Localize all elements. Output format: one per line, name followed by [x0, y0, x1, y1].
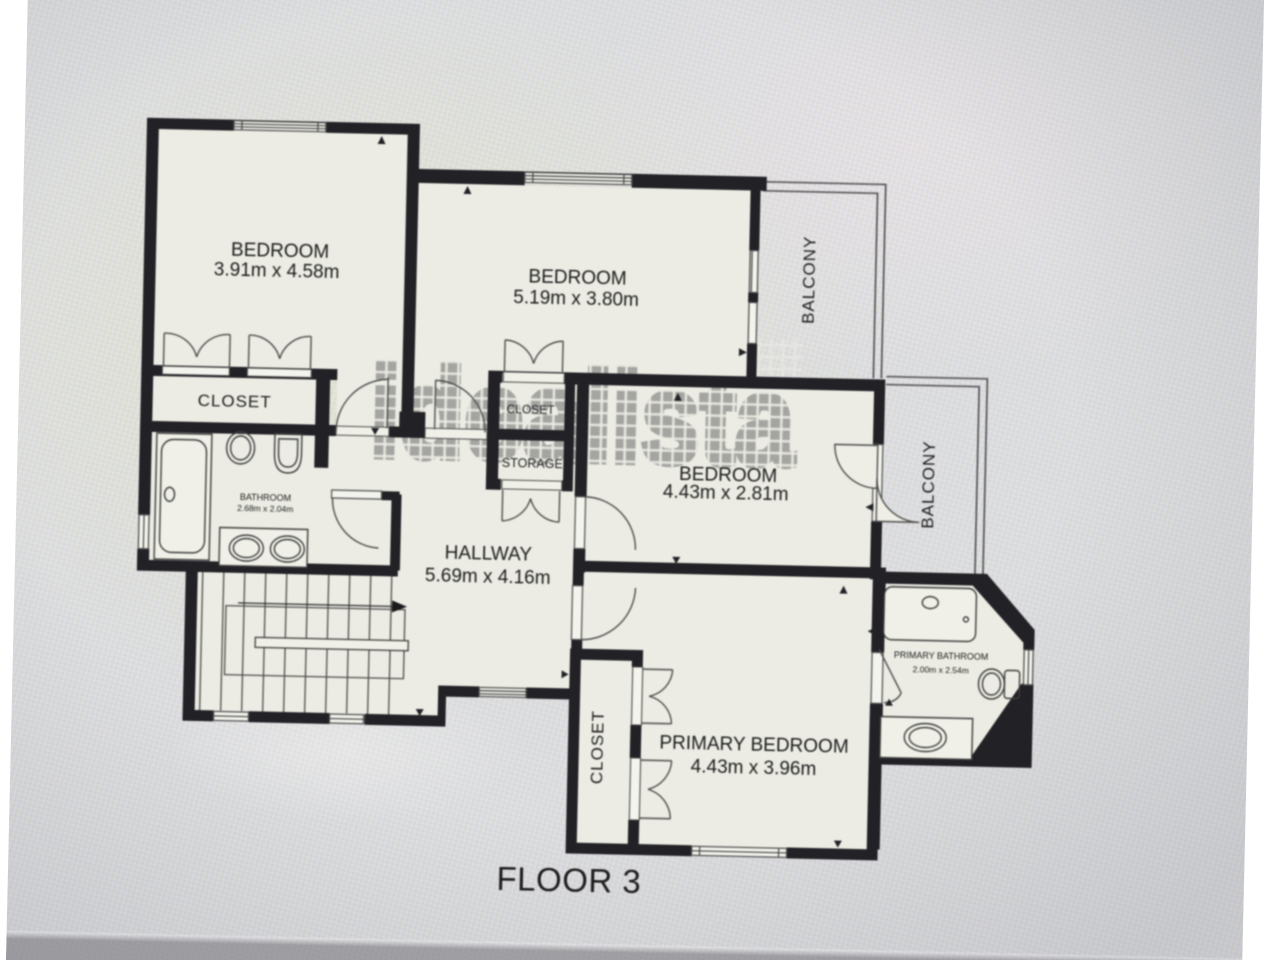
- svg-text:CLOSET: CLOSET: [197, 391, 271, 412]
- svg-text:CLOSET: CLOSET: [506, 402, 555, 417]
- svg-text:BEDROOM: BEDROOM: [528, 266, 627, 289]
- svg-text:2.00m x 2.54m: 2.00m x 2.54m: [913, 664, 969, 675]
- svg-text:5.19m x 3.80m: 5.19m x 3.80m: [513, 287, 639, 311]
- svg-text:CLOSET: CLOSET: [587, 710, 608, 784]
- svg-text:3.91m x 4.58m: 3.91m x 4.58m: [214, 259, 340, 283]
- svg-text:PRIMARY BEDROOM: PRIMARY BEDROOM: [659, 733, 849, 758]
- svg-text:5.69m x 4.16m: 5.69m x 4.16m: [425, 565, 551, 589]
- svg-text:BALCONY: BALCONY: [799, 235, 820, 324]
- svg-text:FLOOR 3: FLOOR 3: [496, 860, 642, 900]
- svg-text:4.43m x 3.96m: 4.43m x 3.96m: [690, 756, 816, 780]
- svg-text:BATHROOM: BATHROOM: [240, 492, 292, 503]
- svg-text:HALLWAY: HALLWAY: [444, 543, 532, 566]
- svg-text:BALCONY: BALCONY: [918, 440, 939, 529]
- svg-text:2.68m x 2.04m: 2.68m x 2.04m: [237, 503, 293, 514]
- svg-text:4.43m x 2.81m: 4.43m x 2.81m: [663, 482, 789, 506]
- svg-text:STORAGE: STORAGE: [502, 456, 563, 471]
